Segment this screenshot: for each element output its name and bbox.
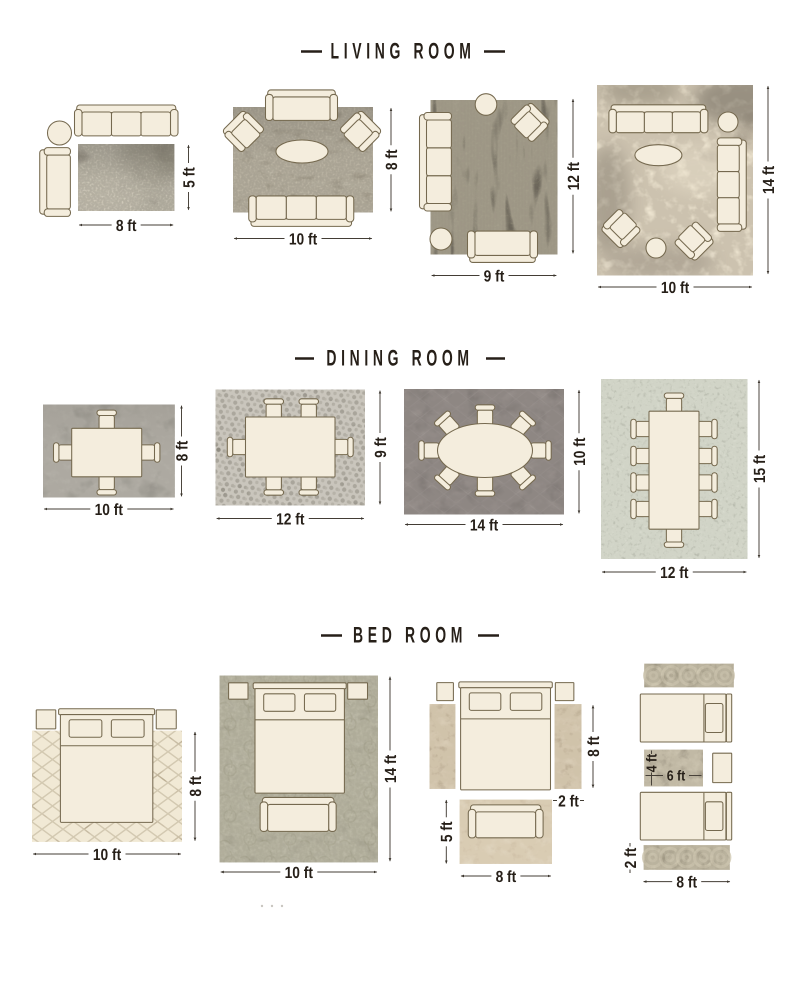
svg-text:8 ft: 8 ft — [173, 440, 191, 461]
svg-text:14 ft: 14 ft — [382, 754, 400, 783]
svg-text:5 ft: 5 ft — [180, 167, 198, 188]
svg-text:12 ft: 12 ft — [660, 564, 689, 582]
svg-text:10 ft: 10 ft — [95, 501, 124, 519]
svg-text:DINING ROOM: DINING ROOM — [326, 346, 473, 371]
svg-text:6 ft: 6 ft — [667, 769, 686, 785]
svg-text:LIVING ROOM: LIVING ROOM — [331, 39, 476, 64]
svg-text:10 ft: 10 ft — [571, 437, 589, 466]
svg-text:15 ft: 15 ft — [751, 454, 769, 483]
svg-text:8 ft: 8 ft — [585, 736, 603, 757]
svg-text:12 ft: 12 ft — [565, 162, 583, 191]
svg-text:9 ft: 9 ft — [372, 437, 390, 458]
svg-text:10 ft: 10 ft — [285, 864, 314, 882]
svg-text:14 ft: 14 ft — [470, 516, 499, 534]
svg-text:14 ft: 14 ft — [760, 165, 778, 194]
svg-text:BED ROOM: BED ROOM — [353, 623, 467, 648]
svg-text:10 ft: 10 ft — [289, 230, 318, 248]
svg-text:8 ft: 8 ft — [116, 217, 137, 235]
svg-text:8 ft: 8 ft — [383, 149, 401, 170]
svg-text:10 ft: 10 ft — [661, 279, 690, 297]
svg-text:8 ft: 8 ft — [676, 873, 697, 891]
svg-text:10 ft: 10 ft — [93, 846, 122, 864]
svg-text:4 ft: 4 ft — [645, 754, 661, 773]
svg-text:2 ft: 2 ft — [622, 847, 640, 868]
svg-text:8 ft: 8 ft — [187, 775, 205, 796]
svg-text:12 ft: 12 ft — [276, 510, 305, 528]
svg-text:2 ft: 2 ft — [558, 792, 579, 810]
svg-text:9 ft: 9 ft — [484, 267, 505, 285]
svg-text:5 ft: 5 ft — [438, 821, 456, 842]
svg-text:8 ft: 8 ft — [496, 868, 517, 886]
